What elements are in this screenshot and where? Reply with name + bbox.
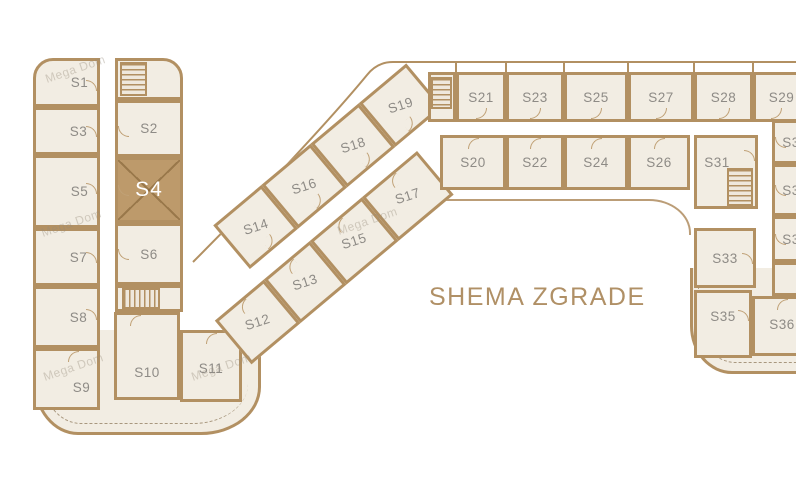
door-arc-icon [719, 108, 730, 119]
door-arc-icon [775, 137, 786, 148]
unit-label: S7 [70, 250, 88, 265]
door-arc-icon [654, 138, 665, 149]
door-arc-icon [591, 108, 602, 119]
room [772, 262, 796, 296]
door-arc-icon [310, 193, 325, 208]
door-arc-icon [738, 310, 749, 321]
door-arc-icon [261, 234, 276, 249]
unit-label: S22 [522, 155, 548, 170]
unit-label: S6 [140, 247, 158, 262]
door-arc-icon [86, 126, 97, 137]
unit-label: S36 [769, 317, 795, 332]
unit-s4: S4 [115, 157, 183, 223]
balcony-edge-line [437, 199, 691, 235]
unit-s8: S8 [33, 286, 100, 348]
unit-s34: S34 [772, 216, 796, 262]
door-arc-icon [742, 253, 753, 264]
balcony-dividers [456, 62, 753, 72]
door-arc-icon [775, 185, 786, 196]
door-arc-icon [118, 185, 129, 196]
unit-s22: S22 [506, 135, 564, 190]
unit-label: S27 [648, 90, 674, 105]
unit-label: S4 [135, 178, 163, 202]
unit-label: S25 [583, 90, 609, 105]
unit-s3: S3 [33, 107, 100, 155]
unit-s32: S32 [772, 164, 796, 216]
door-arc-icon [771, 108, 782, 119]
door-arc-icon [744, 150, 755, 161]
stairs-icon [727, 168, 753, 206]
unit-label: S21 [468, 90, 494, 105]
door-arc-icon [656, 108, 667, 119]
unit-label: S35 [710, 309, 736, 324]
plan-title: SHEMA ZGRADE [429, 283, 646, 312]
door-arc-icon [358, 153, 373, 168]
unit-label: S8 [70, 310, 88, 325]
door-arc-icon [86, 252, 97, 263]
unit-s30: S30 [772, 120, 796, 164]
unit-label: S29 [769, 90, 795, 105]
unit-s2: S2 [115, 100, 183, 157]
door-arc-icon [86, 309, 97, 320]
unit-label: S31 [704, 155, 730, 170]
door-arc-icon [118, 249, 129, 260]
unit-s36: S36 [752, 296, 796, 356]
unit-label: S10 [134, 365, 160, 380]
unit-s21: S21 [456, 72, 506, 122]
unit-s33: S33 [694, 228, 756, 288]
unit-s26: S26 [628, 135, 690, 190]
unit-label: S3 [70, 124, 88, 139]
unit-s27: S27 [628, 72, 694, 122]
unit-label: S18 [338, 134, 367, 156]
unit-label: S2 [140, 121, 158, 136]
unit-label: S24 [583, 155, 609, 170]
unit-s35: S35 [694, 290, 752, 358]
door-arc-icon [530, 108, 541, 119]
door-arc-icon [476, 108, 487, 119]
door-arc-icon [591, 138, 602, 149]
unit-s24: S24 [564, 135, 628, 190]
unit-label: S33 [712, 251, 738, 266]
door-arc-icon [86, 80, 97, 91]
door-arc-icon [402, 116, 417, 131]
stairs-icon [431, 77, 452, 109]
floor-plan: SHEMA ZGRADE S1S3S5S7S8S9S2S4S6S10S11S14… [0, 0, 796, 500]
unit-s20: S20 [440, 135, 506, 190]
door-arc-icon [118, 126, 129, 137]
unit-label: S17 [393, 185, 422, 207]
unit-label: S23 [522, 90, 548, 105]
door-arc-icon [468, 138, 479, 149]
stairs-icon [120, 62, 147, 96]
door-arc-icon [86, 183, 97, 194]
unit-s28: S28 [694, 72, 753, 122]
door-arc-icon [388, 173, 403, 188]
unit-s23: S23 [506, 72, 564, 122]
unit-label: S13 [291, 271, 320, 293]
door-arc-icon [530, 138, 541, 149]
door-arc-icon [285, 259, 300, 274]
stairs-icon [122, 288, 160, 309]
unit-label: S28 [711, 90, 737, 105]
unit-label: S20 [460, 155, 486, 170]
door-arc-icon [777, 299, 788, 310]
door-arc-icon [237, 299, 252, 314]
unit-label: S19 [386, 94, 415, 116]
unit-s29: S29 [753, 72, 796, 122]
unit-label: S12 [243, 311, 272, 333]
unit-label: S26 [646, 155, 672, 170]
unit-label: S9 [73, 380, 91, 395]
unit-s25: S25 [564, 72, 628, 122]
door-arc-icon [775, 234, 786, 245]
unit-label: S14 [241, 216, 270, 238]
unit-label: S16 [290, 175, 319, 197]
